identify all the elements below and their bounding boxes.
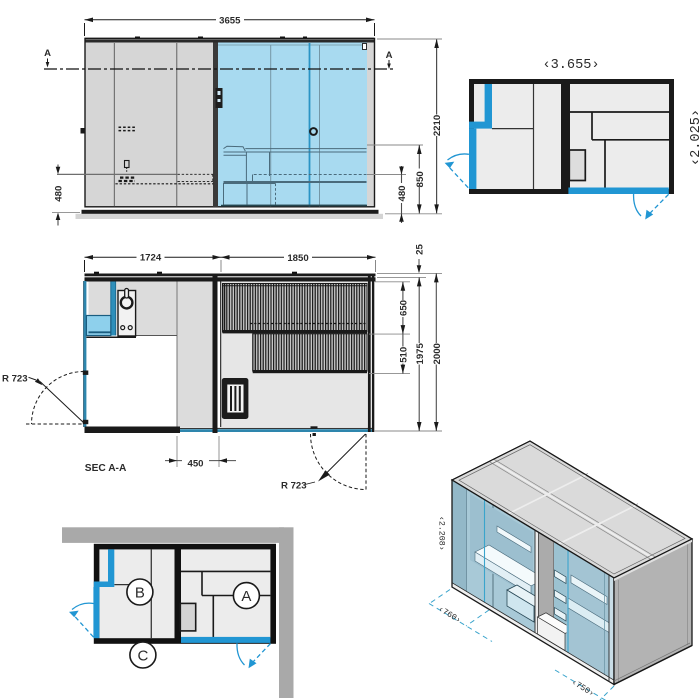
svg-text:1975: 1975 — [415, 342, 426, 364]
svg-text:450: 450 — [187, 458, 203, 469]
svg-text:3655: 3655 — [219, 15, 241, 26]
svg-text:2210: 2210 — [432, 115, 443, 136]
svg-text:B: B — [135, 584, 145, 601]
svg-text:SEC A-A: SEC A-A — [85, 463, 127, 474]
svg-text:850: 850 — [415, 171, 426, 187]
svg-text:‹2.025›: ‹2.025› — [689, 109, 700, 166]
svg-text:1850: 1850 — [287, 253, 308, 264]
svg-text:‹2.208›: ‹2.208› — [437, 516, 446, 551]
svg-text:A: A — [44, 48, 51, 59]
svg-text:480: 480 — [397, 185, 408, 201]
svg-text:1724: 1724 — [140, 253, 162, 264]
svg-text:2000: 2000 — [432, 343, 443, 364]
svg-text:A: A — [386, 50, 393, 61]
svg-text:‹3.655›: ‹3.655› — [542, 58, 599, 73]
svg-text:C: C — [137, 647, 148, 664]
svg-text:510: 510 — [399, 347, 410, 363]
svg-text:A: A — [241, 588, 251, 605]
svg-text:25: 25 — [415, 244, 426, 255]
svg-text:R 723: R 723 — [281, 481, 307, 492]
svg-text:R 723: R 723 — [2, 373, 28, 384]
svg-text:650: 650 — [399, 300, 410, 316]
svg-text:480: 480 — [54, 186, 65, 202]
